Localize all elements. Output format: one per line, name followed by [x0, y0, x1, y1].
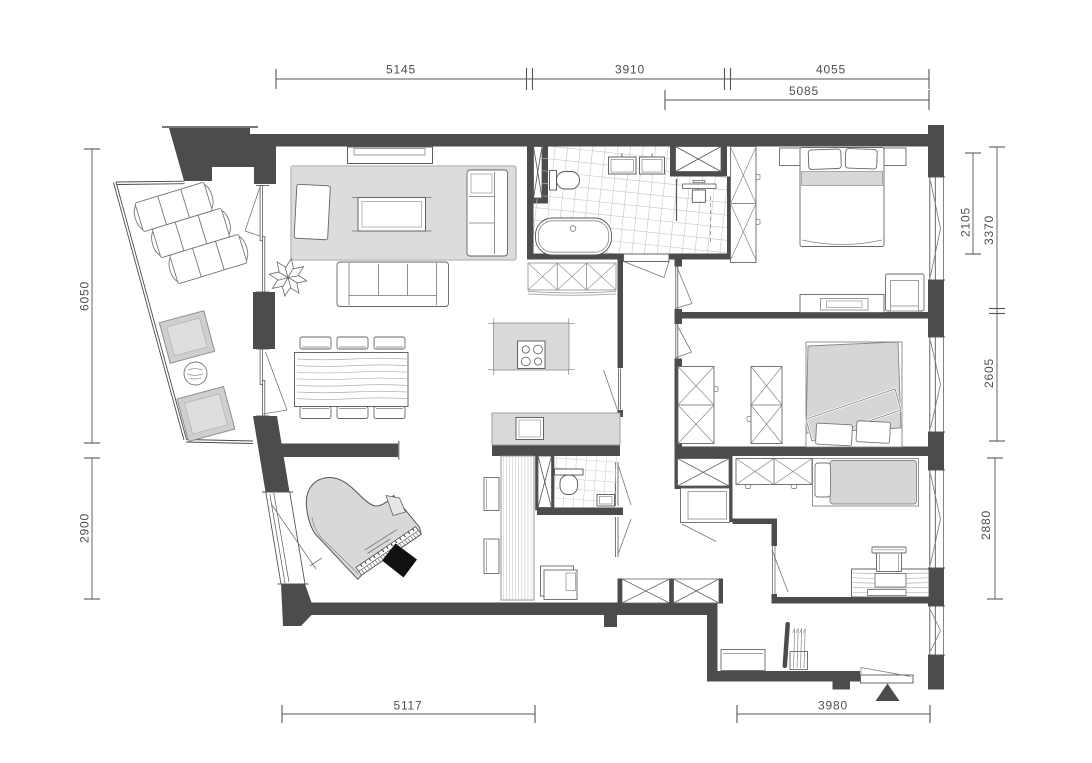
- svg-text:2105: 2105: [959, 207, 973, 237]
- svg-text:2605: 2605: [982, 358, 996, 388]
- svg-text:5145: 5145: [386, 63, 416, 77]
- svg-text:5085: 5085: [789, 84, 819, 98]
- svg-text:3370: 3370: [982, 215, 996, 245]
- svg-text:3910: 3910: [615, 63, 645, 77]
- svg-text:4055: 4055: [816, 63, 846, 77]
- svg-text:5117: 5117: [393, 699, 422, 713]
- svg-text:2880: 2880: [979, 510, 993, 540]
- svg-text:3980: 3980: [818, 699, 848, 713]
- svg-text:2900: 2900: [78, 513, 92, 543]
- svg-text:6050: 6050: [78, 281, 92, 311]
